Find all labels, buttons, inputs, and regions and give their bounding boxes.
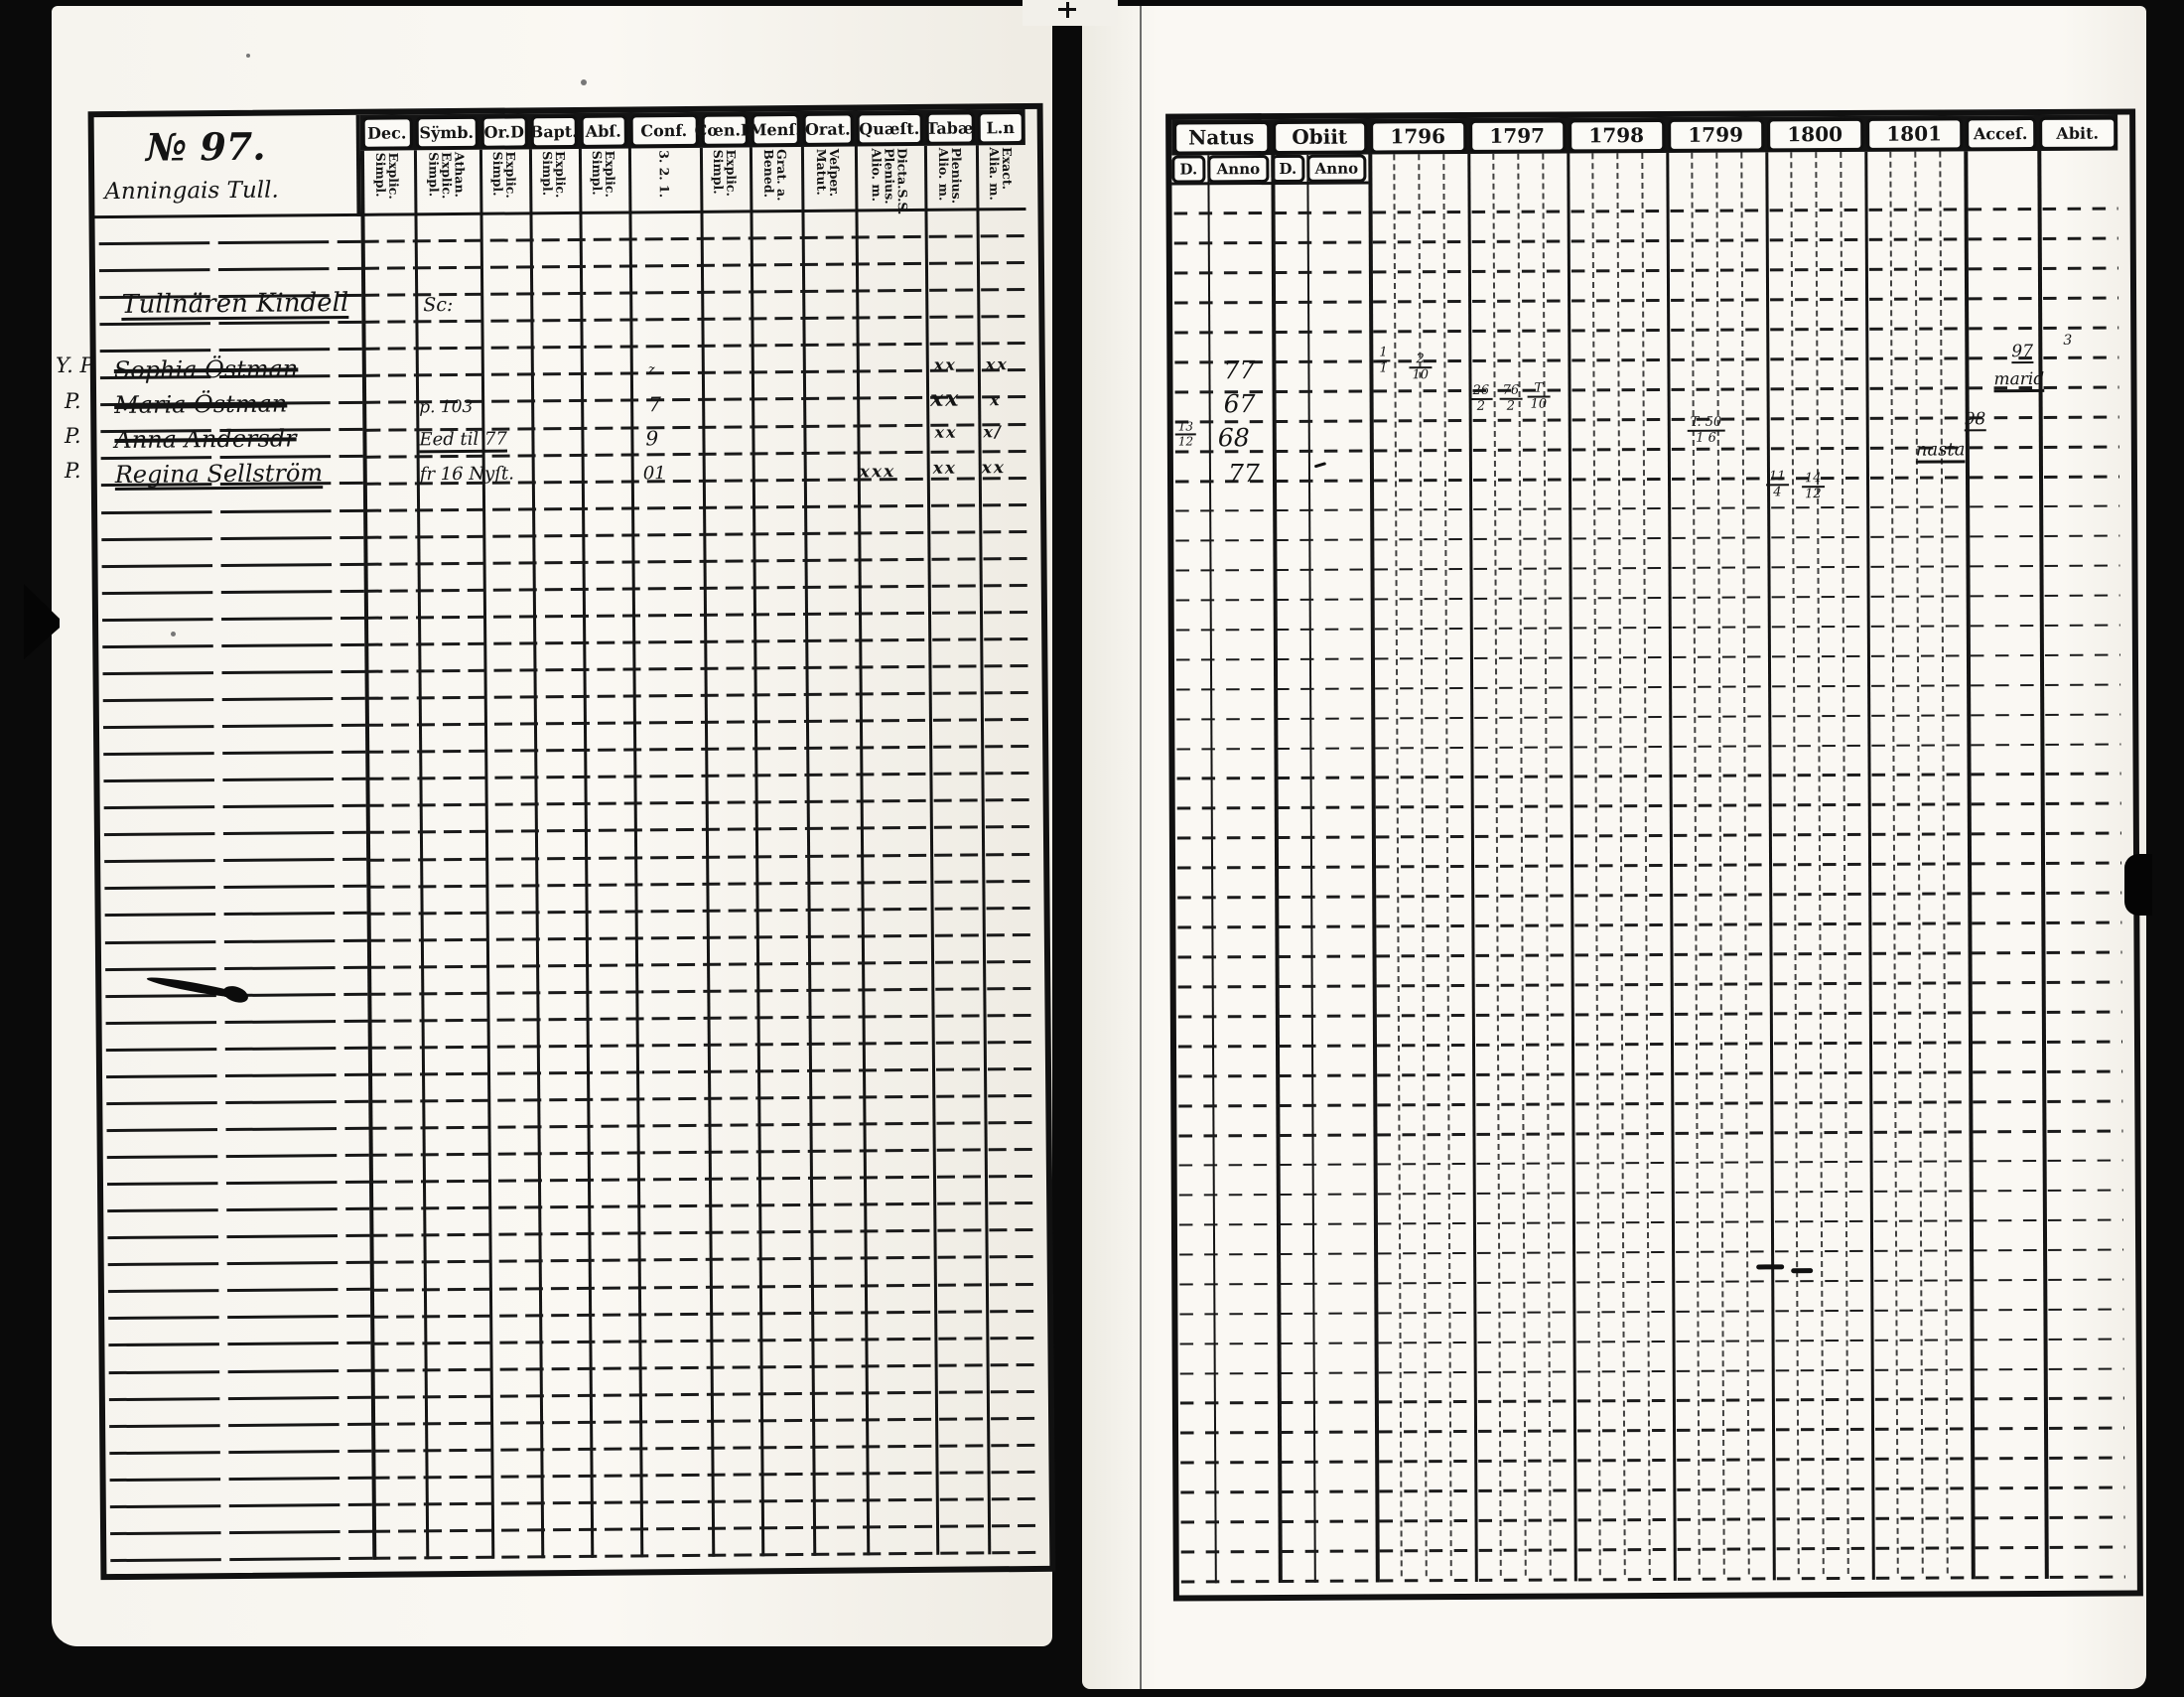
tabae-mark: xx: [934, 355, 957, 374]
obiit-header: Obiit: [1273, 120, 1367, 153]
natus-anno: 68: [1203, 423, 1265, 452]
lp-col-header-5: Conf.: [629, 113, 698, 147]
column-sublabel: Exact. Alia. m.: [988, 145, 1014, 201]
ink-dash: [1756, 1264, 1784, 1269]
natus-anno: 67: [1209, 389, 1271, 418]
rp-subheader-1: Anno: [1207, 155, 1269, 183]
ledger-row-line: [1172, 239, 2118, 274]
ledger-row-line: [1174, 597, 2120, 632]
ledger-row-line: [97, 512, 363, 541]
margin-mark: P.: [65, 389, 81, 413]
ledger-row-line: [97, 485, 363, 513]
ledger-row-line: [105, 1453, 371, 1482]
ledger-row-line: [1173, 507, 2119, 542]
lp-col-header-3: Bapt.: [530, 114, 577, 147]
year-header-1799: 1799: [1668, 118, 1764, 152]
ledger-row-line: [1173, 537, 2119, 572]
ledger-row-line: [1172, 299, 2118, 334]
ledger-row-line: [103, 1130, 369, 1159]
ledger-row-line: [103, 1184, 369, 1212]
symb-note: Sc:: [423, 294, 453, 316]
column-sublabel: Explic. Simpl.: [712, 148, 738, 197]
ledger-row-line: [1178, 1460, 2124, 1494]
ledger-row-line: [1177, 1281, 2123, 1316]
ledger-row-line: [95, 324, 361, 353]
column-label: Natus: [1188, 125, 1254, 149]
ledger-row-line: [105, 1426, 371, 1455]
column-label: Abſ.: [586, 121, 621, 140]
ledger-row-line: [1174, 627, 2120, 661]
column-label: Cœn.D: [695, 120, 754, 140]
column-sublabel: Anno: [1315, 160, 1359, 178]
column-sublabel: Explic. Simpl.: [591, 149, 616, 198]
ledger-row-line: [372, 1527, 1037, 1560]
lp-col-subheader-2: Explic. Simpl.: [479, 149, 530, 214]
column-label: Orat.: [805, 119, 851, 138]
examination-table: № 97. Anningais Tull. Dec.Sÿmb.Or.DBapt.…: [88, 103, 1056, 1580]
ledger-row-line: [1178, 1370, 2124, 1405]
ledger-row-line: [101, 915, 367, 943]
tabae-mark: xx: [934, 423, 957, 442]
entry-name: Anna Andersdr: [114, 424, 296, 454]
lp-col-header-4: Abſ.: [580, 114, 626, 147]
ledger-row-line: [106, 1533, 372, 1562]
mark-1796: 2 10: [1409, 353, 1432, 381]
ledger-row-line: [104, 1344, 370, 1373]
lp-col-header-6: Cœn.D: [701, 113, 748, 146]
ledger-row-line: [103, 1157, 369, 1186]
entry-name: Sophia Östman: [114, 354, 299, 384]
lp-col-header-8: Orat.: [802, 112, 853, 145]
ledger-row-line: [105, 1399, 371, 1428]
fraction-top: 13: [1175, 420, 1196, 435]
ledger-row-line: [99, 727, 365, 756]
abit-superscript: 3: [2063, 333, 2072, 349]
ledger-row-line: [95, 243, 361, 272]
page-number: № 97.: [146, 124, 266, 170]
ledger-row-line: [1174, 656, 2120, 691]
fraction-top: T. 50: [1688, 416, 1725, 432]
column-sublabel: Dicta.S.S. Plenius. Alio. m.: [870, 146, 909, 215]
column-label: Conf.: [640, 120, 687, 139]
ledger-row-line: [104, 1318, 370, 1346]
lp-col-header-0: Dec.: [361, 116, 412, 149]
lp-col-header-9: Quæſt.: [856, 111, 922, 145]
conf-entry: 01: [643, 463, 666, 484]
mark-1797: T 10: [1528, 382, 1551, 411]
lp-col-subheader-7: Grat. a. Bened.: [750, 147, 802, 212]
rp-subheader-2: D.: [1271, 155, 1304, 183]
ledger-row-line: [103, 1237, 369, 1266]
margin-mark: P.: [65, 459, 81, 483]
lp-col-subheader-10: Plenius. Alio. m.: [924, 145, 977, 211]
lp-col-subheader-8: Veſper. Matut.: [801, 146, 856, 212]
ledger-row-line: [1179, 1518, 2125, 1553]
lp-col-header-11: L.n: [977, 111, 1024, 144]
ledger-row-line: [1178, 1430, 2124, 1465]
place-name: Anningais Tull.: [104, 178, 279, 206]
mark-1797: 26 2: [1470, 384, 1493, 413]
left-page: Y. P. P. P. P. № 97. Anningais Tull. Dec…: [52, 6, 1052, 1646]
entry-name: Maria Östman: [114, 389, 287, 419]
ln-mark: xx: [986, 354, 1009, 373]
ledger-row-line: [1179, 1548, 2125, 1583]
year-header-1801: 1801: [1866, 117, 1963, 151]
ledger-row-line: [102, 1023, 368, 1052]
symb-entry: Eed til 77: [419, 429, 507, 451]
column-label: Dec.: [367, 123, 407, 142]
right-page: NatusObiit179617971798179918001801Acceſ.…: [1082, 6, 2146, 1689]
ledger-row-line: [98, 620, 364, 648]
acces-number: 98: [1965, 409, 1986, 431]
acces-note: nasta: [1916, 439, 1966, 460]
year-header-1800: 1800: [1767, 117, 1863, 151]
fraction-top: 1: [1376, 346, 1390, 361]
ledger-row-line: [100, 888, 366, 917]
column-label: Acceſ.: [1974, 124, 2028, 143]
book-scan: Y. P. P. P. P. № 97. Anningais Tull. Dec…: [0, 0, 2184, 1697]
column-label: L.n: [986, 118, 1015, 137]
ledger-row-line: [1172, 210, 2118, 244]
ledger-row-line: [1173, 478, 2119, 512]
ledger-row-line: [1174, 686, 2120, 721]
tabae-mark: xx: [933, 459, 957, 479]
mark-1799: T. 50 1 6: [1688, 416, 1725, 445]
entry-name: Regina Sellström: [115, 459, 324, 489]
ledger-row-line: [97, 539, 363, 568]
ledger-row-line: [1178, 1341, 2124, 1375]
ledger-row-line: [106, 1480, 372, 1508]
occupant-name: Tullnären Kindell: [121, 288, 348, 320]
mark-1797: 76 2: [1500, 384, 1523, 413]
ledger-row-line: [1177, 1311, 2123, 1345]
natus-header: Natus: [1173, 121, 1270, 155]
ledger-row-line: [1177, 1192, 2123, 1226]
ledger-row-line: [1172, 358, 2118, 393]
conf-entry: z: [648, 362, 655, 377]
fraction-top: 76: [1500, 384, 1523, 400]
quaest-mark: xxx: [860, 462, 896, 482]
ledger-row-line: [1174, 716, 2120, 751]
ledger-row-line: [100, 861, 366, 890]
natus-day-fraction: 13 12: [1175, 420, 1196, 447]
tabae-mark: xx: [930, 386, 960, 412]
ledger-row-line: [100, 834, 366, 863]
rp-subheader-0: D.: [1171, 155, 1205, 183]
fraction-top: 26: [1470, 384, 1493, 400]
column-sublabel: Grat. a. Bened.: [762, 147, 788, 202]
natus-anno: 77: [1213, 459, 1275, 488]
ledger-row-line: [1177, 1162, 2123, 1197]
ledger-row-line: [99, 754, 365, 782]
column-sublabel: D.: [1279, 160, 1297, 178]
ledger-row-line: [98, 646, 364, 675]
column-sublabel: Anno: [1217, 160, 1261, 178]
ledger-row-line: [102, 1076, 368, 1105]
lp-col-subheader-6: Explic. Simpl.: [700, 147, 751, 212]
mark-1800: 11 4: [1766, 470, 1789, 498]
fraction-top: 14: [1802, 472, 1825, 488]
ledger-row-line: [99, 673, 365, 702]
fraction-bottom: 1 6: [1688, 431, 1725, 445]
symb-entry: p. 103: [419, 397, 473, 417]
ledger-row-line: [1176, 1132, 2122, 1167]
column-sublabel: D.: [1179, 160, 1197, 178]
ledger-row-line: [100, 807, 366, 836]
fraction-bottom: 10: [1528, 397, 1551, 411]
rp-subheader-3: Anno: [1306, 155, 1366, 183]
ledger-row-line: [1172, 269, 2118, 304]
ledger-row-line: [104, 1291, 370, 1320]
ln-mark: xx: [982, 458, 1006, 478]
column-label: 1797: [1489, 124, 1545, 148]
lp-col-header-7: Menſ.: [751, 112, 799, 145]
fraction-bottom: 4: [1766, 486, 1789, 499]
fraction-bottom: 10: [1409, 368, 1432, 382]
binding-mark: [1023, 0, 1118, 26]
ledger-row-line: [1171, 181, 2117, 215]
column-label: Tabæ: [926, 118, 974, 137]
mark-1796: 1 1: [1376, 346, 1390, 374]
fraction-top: 2: [1409, 353, 1432, 368]
column-label: Quæſt.: [859, 118, 919, 138]
fraction-bottom: 1: [1376, 361, 1390, 375]
ln-mark: x/: [983, 422, 1003, 441]
page-edge-blob: [2124, 854, 2152, 916]
acces-header: Acceſ.: [1966, 116, 2036, 149]
lp-col-header-2: Or.D: [480, 115, 527, 148]
lp-col-subheader-11: Exact. Alia. m.: [976, 145, 1026, 211]
conf-entry: 9: [645, 426, 658, 450]
ink-dash: [1791, 1268, 1813, 1273]
column-sublabel: Veſper. Matut.: [815, 147, 841, 198]
scan-speck: [171, 632, 176, 636]
ledger-row-line: [1176, 1102, 2122, 1137]
fraction-bottom: 12: [1175, 435, 1196, 448]
column-label: Obiit: [1292, 125, 1347, 149]
ledger-row-line: [102, 1050, 368, 1078]
column-sublabel: Athan. Explic. Simpl.: [427, 150, 466, 200]
rp-column-band: NatusObiit179617971798179918001801Acceſ.…: [1171, 115, 2117, 156]
fraction-bottom: 2: [1470, 399, 1493, 413]
scan-speck: [246, 54, 250, 58]
lp-column-band: Dec.Sÿmb.Or.DBapt.Abſ.Conf.Cœn.DMenſ.Ora…: [360, 109, 1025, 151]
column-label: 1801: [1886, 121, 1942, 145]
column-label: 1800: [1787, 122, 1843, 146]
mark-1800: 14 12: [1802, 472, 1825, 500]
ledger-row-line: [99, 780, 365, 809]
year-header-1796: 1796: [1370, 119, 1466, 153]
ledger-row-line: [95, 216, 361, 245]
attendance-table: NatusObiit179617971798179918001801Acceſ.…: [1165, 108, 2143, 1601]
ledger-row-line: [1178, 1488, 2124, 1523]
column-sublabel: Explic. Simpl.: [374, 150, 400, 199]
ledger-row-line: [1174, 567, 2120, 602]
fraction-top: 11: [1766, 470, 1789, 486]
year-header-1797: 1797: [1469, 119, 1566, 153]
lp-col-subheader-3: Explic. Simpl.: [529, 149, 580, 214]
ledger-row-line: [104, 1264, 370, 1293]
column-sublabel: 3. 2. 1.: [657, 148, 670, 198]
column-label: 1796: [1390, 124, 1445, 148]
lp-col-header-1: Sÿmb.: [415, 115, 478, 149]
ledger-row-line: [1172, 329, 2118, 363]
fraction-bottom: 2: [1500, 399, 1523, 413]
ledger-row-line: [1177, 1221, 2123, 1256]
ledger-row-line: [98, 566, 364, 595]
conf-entry: 7: [648, 392, 661, 416]
lp-col-subheader-5: 3. 2. 1.: [628, 148, 701, 214]
ledger-row-line: [1177, 1251, 2123, 1286]
column-label: 1799: [1688, 123, 1743, 147]
margin-mark: P.: [65, 424, 81, 448]
scan-speck: [581, 79, 587, 85]
column-label: Bapt.: [530, 121, 578, 140]
lp-col-header-10: Tabæ: [925, 111, 974, 144]
lp-col-subheader-4: Explic. Simpl.: [579, 148, 629, 213]
ledger-row-line: [98, 593, 364, 622]
ledger-row-line: [101, 941, 367, 970]
column-sublabel: Plenius. Alio. m.: [937, 146, 964, 205]
ledger-row-line: [102, 1103, 368, 1132]
page-edge-shadow: [1140, 6, 1142, 1689]
rp-grid-rows: [1171, 181, 2124, 1584]
abit-header: Abit.: [2039, 116, 2116, 149]
column-sublabel: Explic. Simpl.: [541, 149, 567, 198]
column-label: Or.D: [484, 122, 525, 141]
household-header: № 97. Anningais Tull.: [94, 115, 361, 218]
column-label: Menſ.: [750, 119, 801, 138]
year-header-1798: 1798: [1569, 118, 1665, 152]
fraction-top: T: [1528, 382, 1551, 398]
ledger-row-line: [1178, 1400, 2124, 1435]
ledger-row-line: [99, 700, 365, 729]
column-label: Sÿmb.: [419, 122, 474, 141]
ledger-row-line: [103, 1210, 369, 1239]
column-label: Abit.: [2056, 123, 2099, 142]
ledger-row-line: [106, 1506, 372, 1535]
lp-col-subheader-1: Athan. Explic. Simpl.: [414, 150, 480, 216]
column-label: 1798: [1588, 123, 1644, 147]
lp-col-subheader-9: Dicta.S.S. Plenius. Alio. m.: [855, 146, 925, 212]
acces-note: marid: [1993, 369, 2044, 389]
fraction-bottom: 12: [1802, 488, 1825, 501]
binding-tick: [1058, 8, 1076, 11]
ln-mark: x: [990, 390, 1002, 409]
ledger-row-line: [105, 1371, 371, 1400]
natus-anno: 77: [1208, 355, 1270, 384]
column-sublabel: Explic. Simpl.: [491, 149, 517, 198]
symb-entry: fr 16 Nyſt.: [420, 463, 514, 485]
lp-col-subheader-0: Explic. Simpl.: [360, 150, 415, 215]
acces-number: 97: [2011, 342, 2033, 363]
